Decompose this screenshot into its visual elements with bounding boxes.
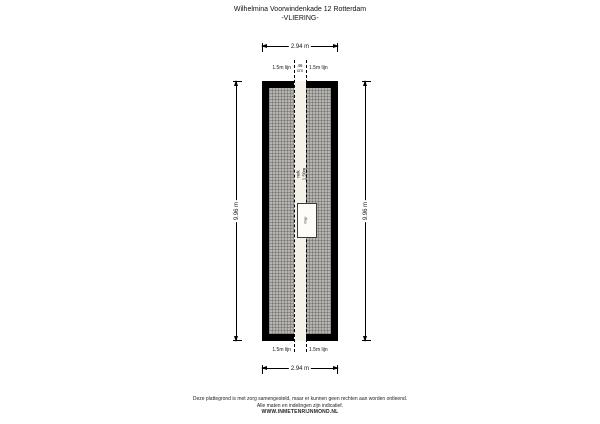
dim-tick-icon [362,340,371,341]
dimension-line-left: 9.96 m [236,81,237,341]
footer-website: WWW.INMETENRIJNMOND.NL [0,409,600,416]
dim-arrow-down-icon [363,336,367,342]
ridge-label-line2: 1.50m [301,168,307,181]
dim-tick-icon [362,81,371,82]
dimension-label-bottom: 2.94 m [289,366,311,372]
dim-arrow-right-icon [333,44,339,48]
dimension-line-right: 9.96 m [365,81,366,341]
dim-tick-icon [233,340,242,341]
dim-tick-icon [262,43,263,52]
lijn-label-top-right: 1.5m lijn [309,65,328,71]
wall-left [262,81,269,341]
wall-top-right-segment [306,81,338,88]
dim-tick-icon [262,365,263,374]
lijn-label-bottom-left: 1.5m lijn [272,347,291,353]
wall-top-left-segment [262,81,294,88]
wall-right [331,81,338,341]
lijn-dashed-left [294,60,295,352]
wall-bottom-right-segment [306,334,338,341]
dim-tick-icon [337,365,338,374]
hatch-area-left [269,88,294,334]
page-title: Wilhelmina Voorwindenkade 12 Rotterdam [0,5,600,14]
dimension-line-bottom: 2.94 m [262,368,338,369]
wall-bottom-left-segment [262,334,294,341]
dimension-label-top: 2.94 m [289,44,311,50]
ridge-label: nok 1.50m [296,168,307,181]
dimension-label-right: 9.96 m [363,200,369,222]
footer-disclaimer: Deze plattegrond is met zorg samengestel… [0,396,600,416]
strip-width-unit: cm [297,68,303,73]
dim-tick-icon [337,43,338,52]
dim-arrow-right-icon [333,366,339,370]
lijn-label-bottom-right: 1.5m lijn [309,347,328,353]
loft-hatch-label: trap [303,217,308,224]
dim-arrow-down-icon [234,336,238,342]
plan-subtitle: -VLIERING- [0,14,600,23]
strip-width-label: 46 cm [297,63,303,73]
dimension-line-top: 2.94 m [262,46,338,47]
dim-tick-icon [233,81,242,82]
dimension-label-left: 9.96 m [234,200,240,222]
lijn-label-top-left: 1.5m lijn [272,65,291,71]
